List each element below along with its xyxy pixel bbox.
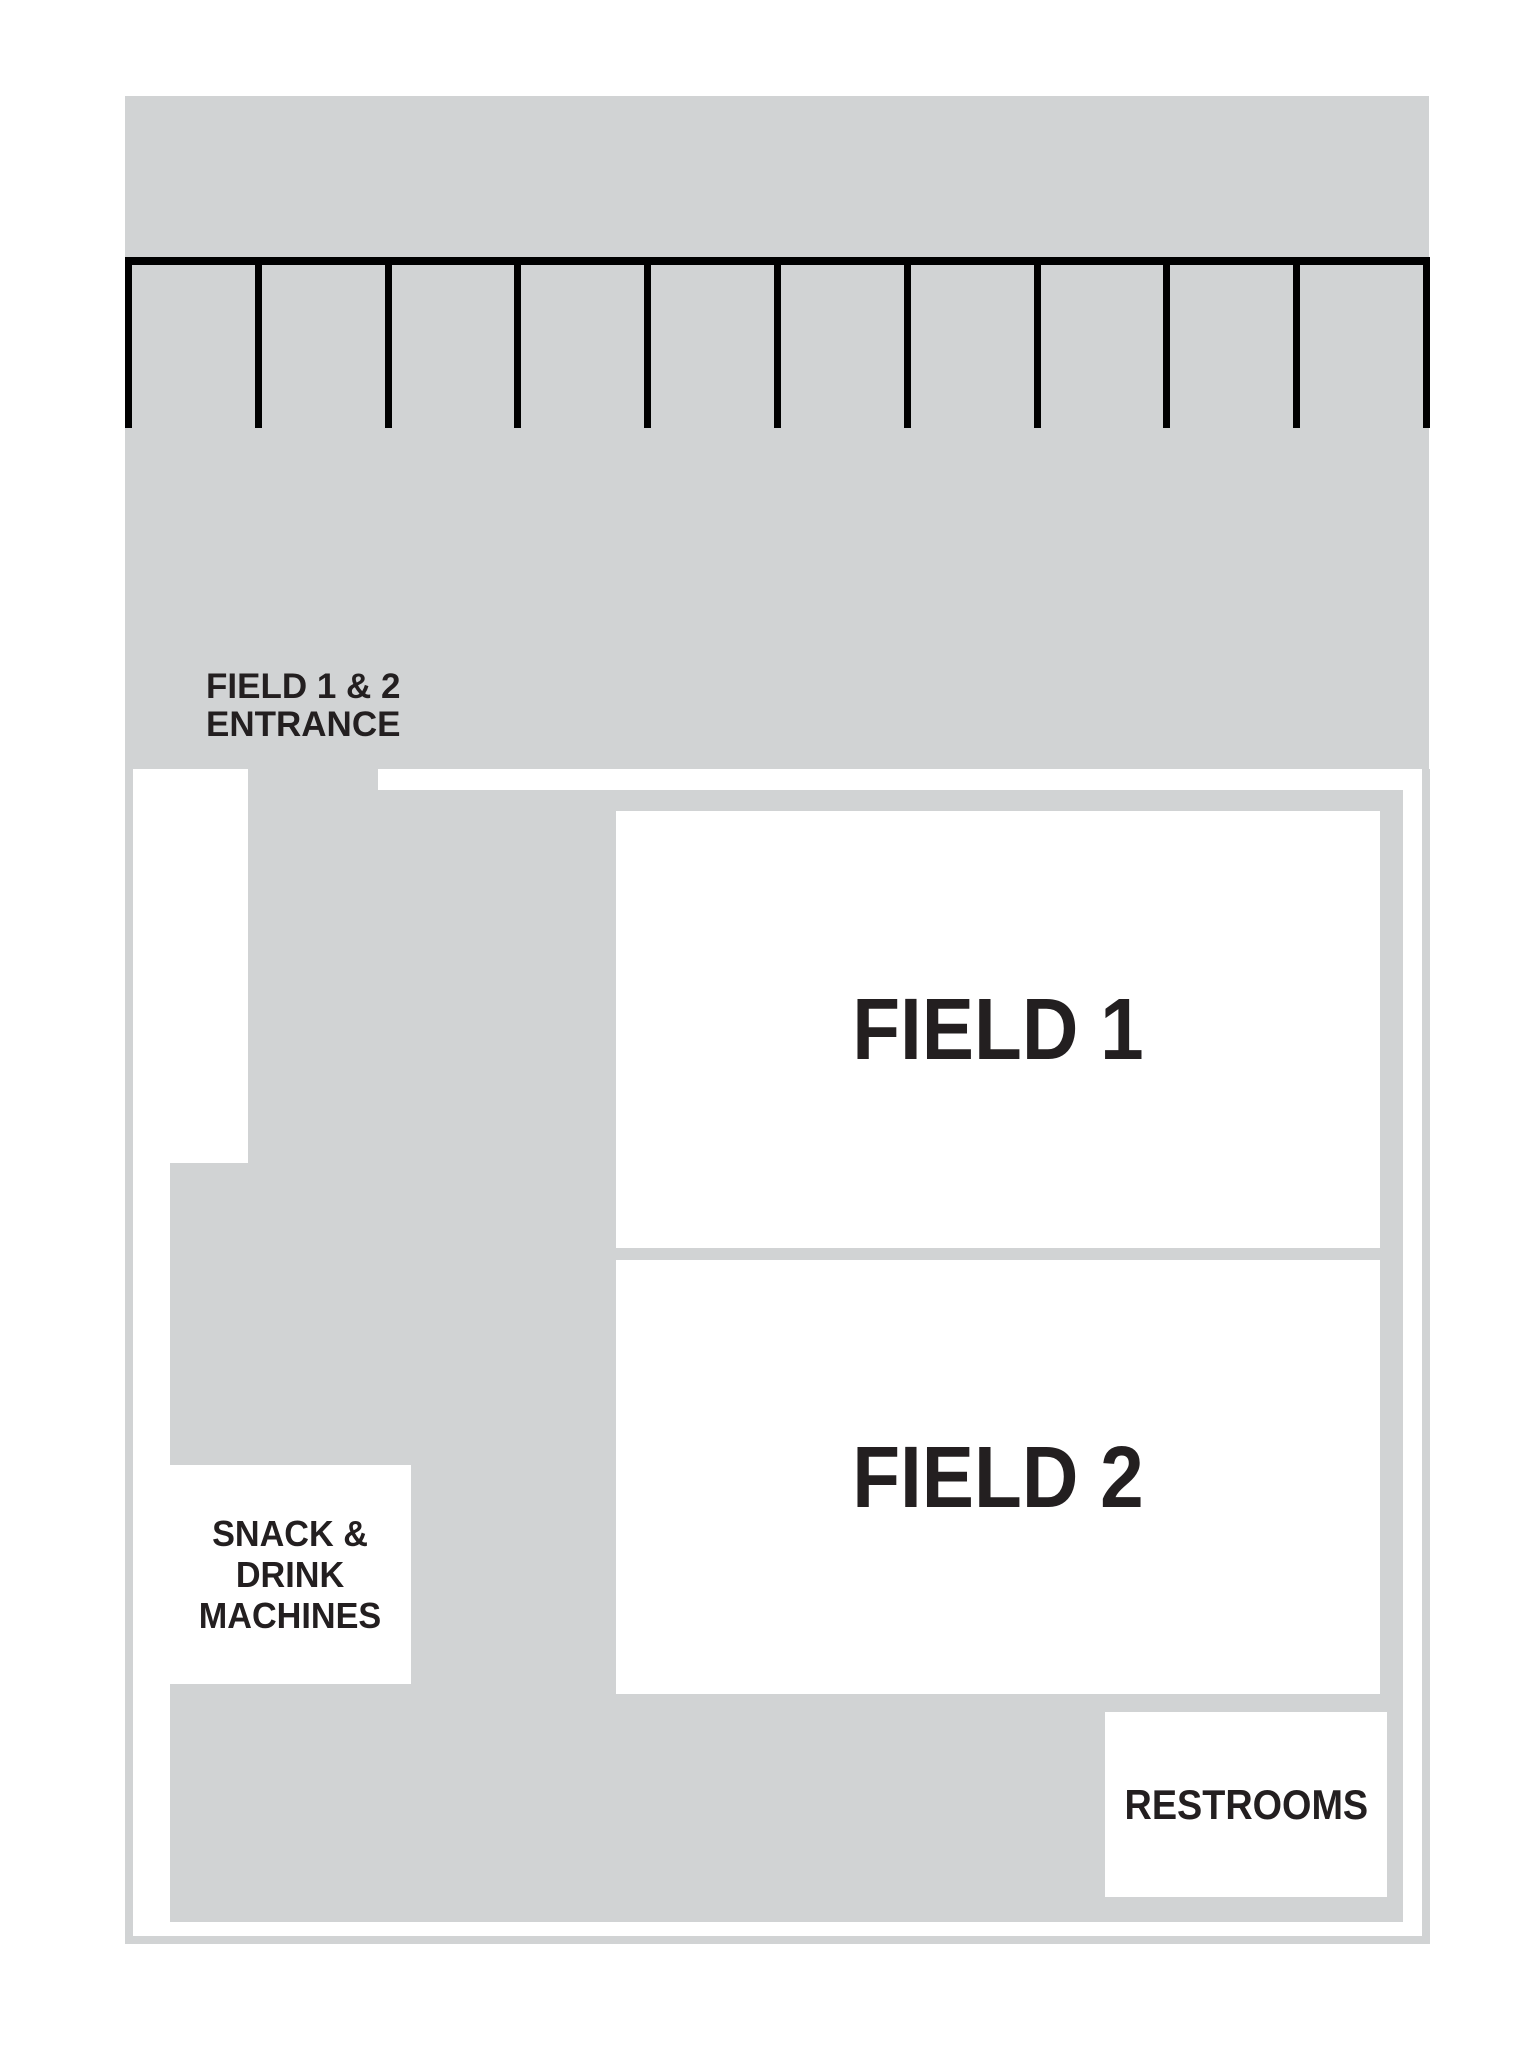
snack-label-line1: SNACK & <box>199 1513 381 1554</box>
field-2-area: FIELD 2 <box>616 1260 1380 1694</box>
entrance-label-line2: ENTRANCE <box>206 706 400 744</box>
grounds-entrance-junction <box>248 769 378 791</box>
field-1-area: FIELD 1 <box>616 811 1380 1248</box>
entrance-label: FIELD 1 & 2 ENTRANCE <box>206 668 400 744</box>
field-2-label: FIELD 2 <box>852 1434 1143 1521</box>
parking-stall-line <box>125 265 132 428</box>
site-outline-right <box>1422 769 1430 1944</box>
parking-stall-line <box>1423 265 1430 428</box>
snack-label-line2: DRINK <box>199 1554 381 1595</box>
site-map: FIELD 1 & 2 ENTRANCE FIELD 1 FIELD 2 SNA… <box>0 0 1539 2047</box>
parking-stall-line <box>644 265 651 428</box>
site-outline-left <box>125 769 133 1944</box>
parking-stall-line <box>1034 265 1041 428</box>
parking-stall-lines <box>125 257 1430 428</box>
parking-stall-line <box>1293 265 1300 428</box>
snack-drink-machines-label: SNACK & DRINK MACHINES <box>199 1513 381 1636</box>
field-1-label: FIELD 1 <box>852 986 1143 1073</box>
parking-stall-line <box>904 265 911 428</box>
entrance-label-line1: FIELD 1 & 2 <box>206 668 400 706</box>
site-outline-bottom <box>125 1936 1430 1944</box>
parking-stall-line <box>385 265 392 428</box>
restrooms-label: RESTROOMS <box>1124 1784 1368 1826</box>
parking-stall-line <box>774 265 781 428</box>
parking-stall-line <box>514 265 521 428</box>
parking-stall-line <box>255 265 262 428</box>
snack-label-line3: MACHINES <box>199 1595 381 1636</box>
parking-stall-line <box>1163 265 1170 428</box>
entrance-walkway <box>133 769 248 1163</box>
snack-drink-machines-area: SNACK & DRINK MACHINES <box>170 1465 411 1684</box>
restrooms-area: RESTROOMS <box>1105 1712 1387 1897</box>
